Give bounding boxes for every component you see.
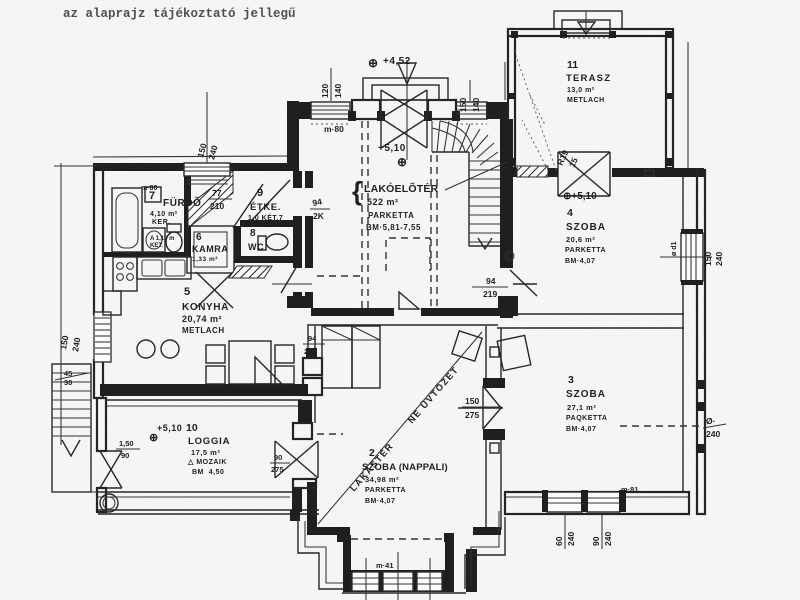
- svg-text:90: 90: [591, 536, 601, 546]
- svg-text:240: 240: [714, 252, 724, 266]
- svg-text:150: 150: [703, 252, 713, 266]
- svg-text:8: 8: [250, 228, 256, 239]
- svg-text:BM·4,07: BM·4,07: [566, 426, 596, 433]
- svg-text:SZOBA: SZOBA: [566, 222, 606, 233]
- svg-text:BM·4,07: BM·4,07: [565, 258, 595, 265]
- svg-text:m·81: m·81: [621, 485, 639, 494]
- svg-text:ø d1: ø d1: [671, 242, 678, 256]
- svg-text:⊕: ⊕: [397, 155, 407, 169]
- svg-text:PARKETTA: PARKETTA: [565, 247, 606, 254]
- svg-text:⊕: ⊕: [368, 56, 378, 70]
- svg-text:KAMRA: KAMRA: [192, 244, 229, 254]
- svg-text:LOGGIA: LOGGIA: [188, 436, 230, 447]
- svg-text:20,74 m²: 20,74 m²: [182, 314, 222, 324]
- svg-text:PARKETTA: PARKETTA: [368, 211, 414, 220]
- svg-text:11: 11: [567, 59, 578, 71]
- svg-text:219: 219: [483, 289, 497, 299]
- svg-text:+4,52: +4,52: [383, 56, 411, 67]
- svg-text:SZOBA (NAPPALI): SZOBA (NAPPALI): [362, 462, 448, 473]
- svg-text:77: 77: [212, 188, 222, 198]
- svg-text:90: 90: [274, 453, 282, 462]
- svg-text:az alaprajz tájékoztató jelleg: az alaprajz tájékoztató jellegű: [63, 7, 296, 21]
- svg-text:94: 94: [486, 276, 496, 286]
- svg-text:WC: WC: [248, 242, 264, 252]
- svg-text:150: 150: [465, 396, 479, 406]
- svg-text:140: 140: [333, 84, 343, 98]
- svg-text:4,10 m²: 4,10 m²: [150, 211, 178, 218]
- svg-text:219: 219: [304, 347, 317, 356]
- svg-text:275: 275: [465, 410, 479, 420]
- svg-text:4: 4: [567, 207, 573, 219]
- svg-text:27,1 m²: 27,1 m²: [567, 403, 596, 412]
- svg-text:20,6 m²: 20,6 m²: [566, 235, 595, 244]
- svg-text:SZOBA: SZOBA: [566, 389, 606, 400]
- svg-text:1,33 m²: 1,33 m²: [192, 256, 218, 263]
- svg-text:34,98 m²: 34,98 m²: [365, 475, 399, 484]
- svg-text:5: 5: [184, 286, 190, 298]
- svg-text:KER.: KER.: [152, 219, 171, 226]
- svg-text:240: 240: [706, 429, 720, 439]
- svg-text:17,5 m²: 17,5 m²: [191, 448, 220, 457]
- svg-text:BM·4,07: BM·4,07: [365, 498, 395, 505]
- svg-text:13,0 m²: 13,0 m²: [567, 87, 595, 94]
- svg-text:240: 240: [603, 532, 613, 546]
- svg-text:ÉTKE.: ÉTKE.: [250, 202, 281, 213]
- svg-text:60: 60: [554, 536, 564, 546]
- svg-text:m·80: m·80: [324, 124, 344, 134]
- svg-text:+5,10: +5,10: [378, 143, 406, 154]
- svg-text:m·80: m·80: [141, 185, 157, 192]
- svg-text:210: 210: [210, 201, 224, 211]
- svg-text:94: 94: [308, 334, 317, 343]
- svg-text:△ MOZAIK: △ MOZAIK: [187, 459, 227, 466]
- svg-text:2: 2: [369, 447, 375, 459]
- svg-text:140: 140: [471, 98, 481, 112]
- svg-text:1,0 KÉT.7: 1,0 KÉT.7: [248, 213, 283, 222]
- svg-text:Ø·: Ø·: [706, 416, 715, 426]
- svg-text:90: 90: [121, 451, 129, 460]
- svg-text:⊕: ⊕: [149, 432, 158, 444]
- svg-text:⊕+5,10: ⊕+5,10: [563, 191, 597, 202]
- svg-text:+5,10: +5,10: [157, 423, 182, 433]
- svg-text:PARKETTA: PARKETTA: [365, 487, 406, 494]
- svg-text:1,50: 1,50: [119, 439, 134, 448]
- svg-text:275: 275: [271, 465, 284, 474]
- svg-text:KET.: KET.: [150, 243, 163, 249]
- svg-text:522 m²: 522 m²: [367, 197, 399, 207]
- svg-text:m·41: m·41: [376, 561, 394, 570]
- svg-text:BM·5,81-7,55: BM·5,81-7,55: [366, 223, 421, 232]
- svg-text:240: 240: [566, 532, 576, 546]
- svg-text:METLACH: METLACH: [182, 326, 225, 335]
- svg-text:10: 10: [186, 422, 198, 434]
- svg-text:METLACH: METLACH: [567, 97, 605, 104]
- svg-text:94: 94: [312, 196, 323, 208]
- svg-text:FÜRDÕ: FÜRDÕ: [163, 196, 202, 209]
- svg-text:2K: 2K: [313, 211, 325, 221]
- svg-text:A 1,10 m: A 1,10 m: [150, 236, 174, 242]
- svg-text:LAKÓELÕTÉR: LAKÓELÕTÉR: [364, 182, 439, 195]
- svg-text:6: 6: [196, 232, 202, 243]
- svg-text:30: 30: [64, 378, 72, 387]
- svg-text:TERASZ: TERASZ: [566, 73, 611, 84]
- svg-text:PAQKETTA: PAQKETTA: [566, 415, 607, 422]
- svg-text:3: 3: [568, 374, 574, 386]
- svg-text:150: 150: [458, 98, 468, 112]
- svg-text:KONYHA: KONYHA: [182, 302, 229, 313]
- svg-text:9: 9: [257, 187, 263, 199]
- svg-text:120: 120: [320, 84, 330, 98]
- svg-text:BM 4,50: BM 4,50: [192, 469, 224, 476]
- svg-text:{: {: [352, 176, 362, 206]
